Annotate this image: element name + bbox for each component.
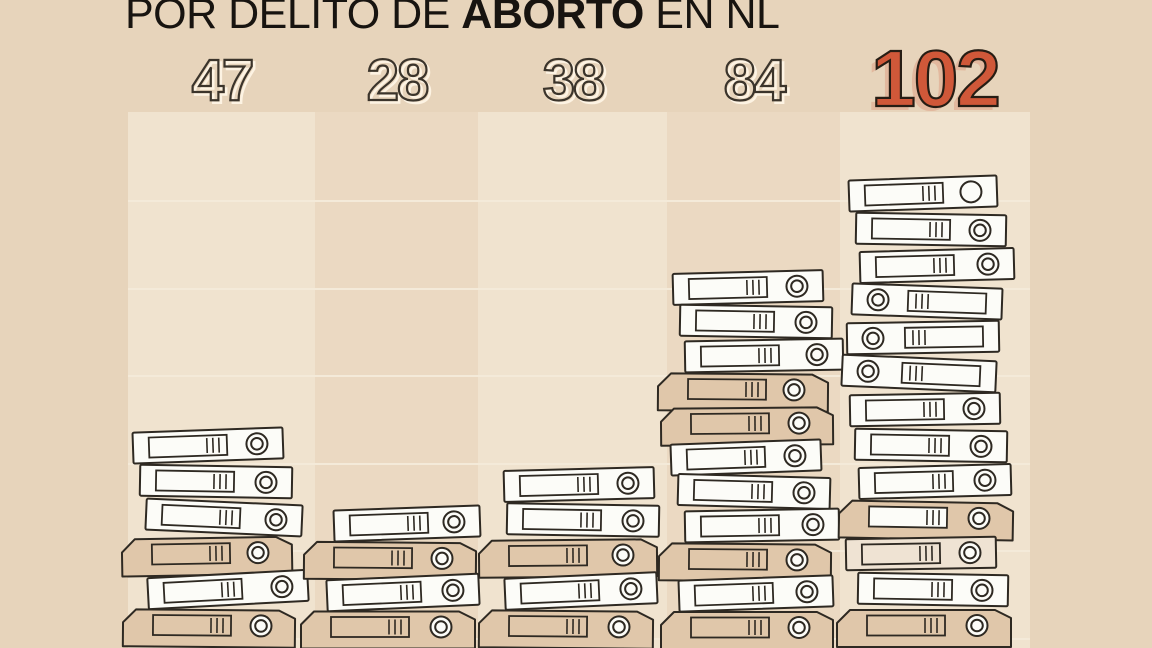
binder [679, 305, 832, 339]
binder [478, 610, 652, 648]
binder [301, 612, 475, 648]
binder [841, 355, 996, 393]
binder [859, 464, 1012, 499]
binder [670, 439, 821, 475]
binder [678, 575, 833, 611]
binder [856, 213, 1007, 247]
binder [132, 427, 283, 463]
svg-text:84: 84 [723, 48, 785, 113]
svg-text:47: 47 [191, 48, 252, 113]
binder [121, 537, 292, 577]
infographic-canvas: POR DELITO DE ABORTO EN NL 4747282838388… [0, 0, 1152, 648]
svg-text:102: 102 [871, 34, 998, 116]
binder [672, 270, 823, 305]
binder [677, 474, 830, 509]
binder [848, 175, 997, 211]
binder [122, 609, 294, 647]
bar-value-label: 102102 [825, 30, 1045, 116]
binder [837, 610, 1011, 647]
svg-text:38: 38 [542, 48, 603, 113]
binder [661, 612, 833, 648]
binder [503, 467, 654, 502]
binder [478, 539, 656, 578]
chart-area: 4747282838388484102102 [0, 0, 1152, 648]
binder [657, 373, 827, 411]
binder [847, 321, 1000, 355]
svg-text:28: 28 [366, 48, 427, 113]
binder [858, 573, 1009, 607]
binder-stack [815, 170, 1055, 648]
binder [855, 429, 1008, 463]
binder [850, 393, 1001, 427]
binder [860, 248, 1015, 283]
binder [139, 465, 292, 499]
binder [852, 283, 1003, 319]
binder [846, 537, 997, 571]
binder [839, 500, 1014, 540]
